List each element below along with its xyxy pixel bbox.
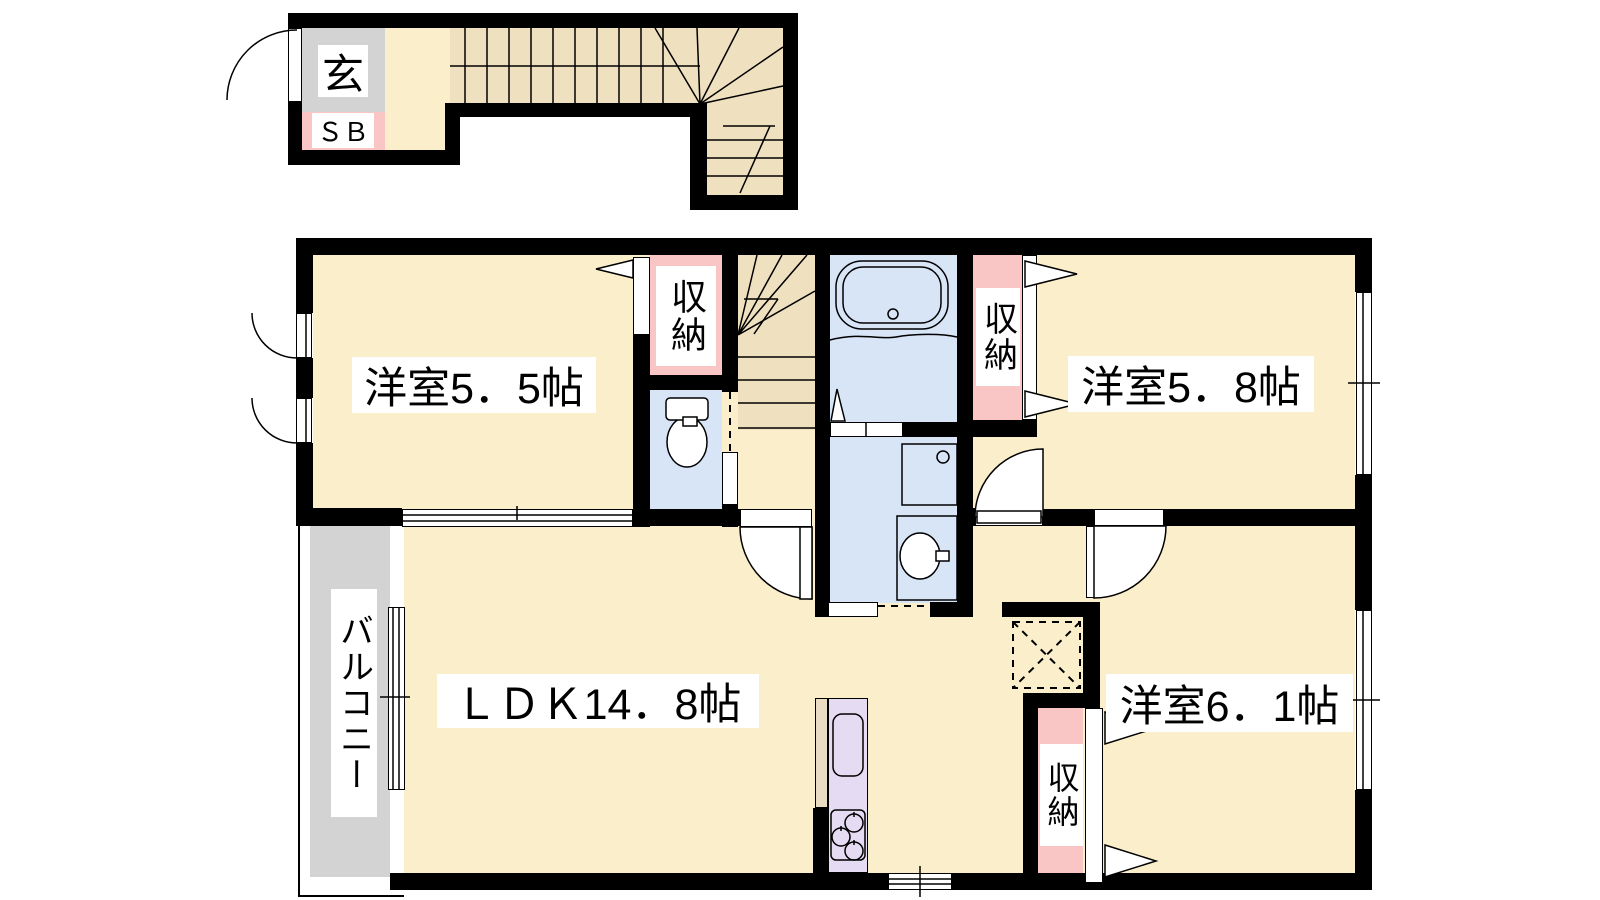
stove-icon — [831, 810, 865, 860]
washing-machine-icon — [902, 444, 957, 505]
washbasin-icon — [897, 516, 957, 600]
refrigerator-space-icon — [1013, 622, 1080, 688]
staircase-main-icon — [738, 255, 815, 428]
casement-window-arc-icon — [252, 313, 306, 443]
closet-5-5-label: 収納 — [656, 266, 716, 366]
room-5-8-label: 洋室5．8帖 — [1068, 356, 1314, 412]
toilet-icon — [666, 398, 708, 467]
plan-graphics — [0, 0, 1600, 900]
closet-5-8-label: 収納 — [976, 288, 1020, 386]
room-5-5-label: 洋室5．5帖 — [352, 357, 596, 413]
ldk-label: ＬＤＫ14．8帖 — [437, 674, 759, 728]
floor-plan: 玄 ＳＢ 収納 収納 収納 洋室5．5帖 洋室5．8帖 洋室6．1帖 ＬＤＫ14… — [0, 0, 1600, 900]
room-5-8-door-arc-icon — [975, 449, 1043, 523]
hall-door-arc-icon — [740, 527, 812, 599]
balcony-label: バルコニー — [331, 589, 377, 817]
staircase-entrance-icon — [450, 28, 783, 193]
entrance-door-arc-icon — [227, 30, 297, 100]
room-6-1-label: 洋室6．1帖 — [1106, 674, 1353, 732]
shoe-box-label: ＳＢ — [312, 113, 374, 148]
bathtub-icon — [830, 261, 957, 437]
closet-6-1-label: 収納 — [1040, 744, 1083, 846]
room-6-1-door-arc-icon — [1094, 526, 1166, 598]
entrance-label: 玄 — [318, 45, 368, 97]
kitchen-sink-icon — [833, 714, 863, 776]
